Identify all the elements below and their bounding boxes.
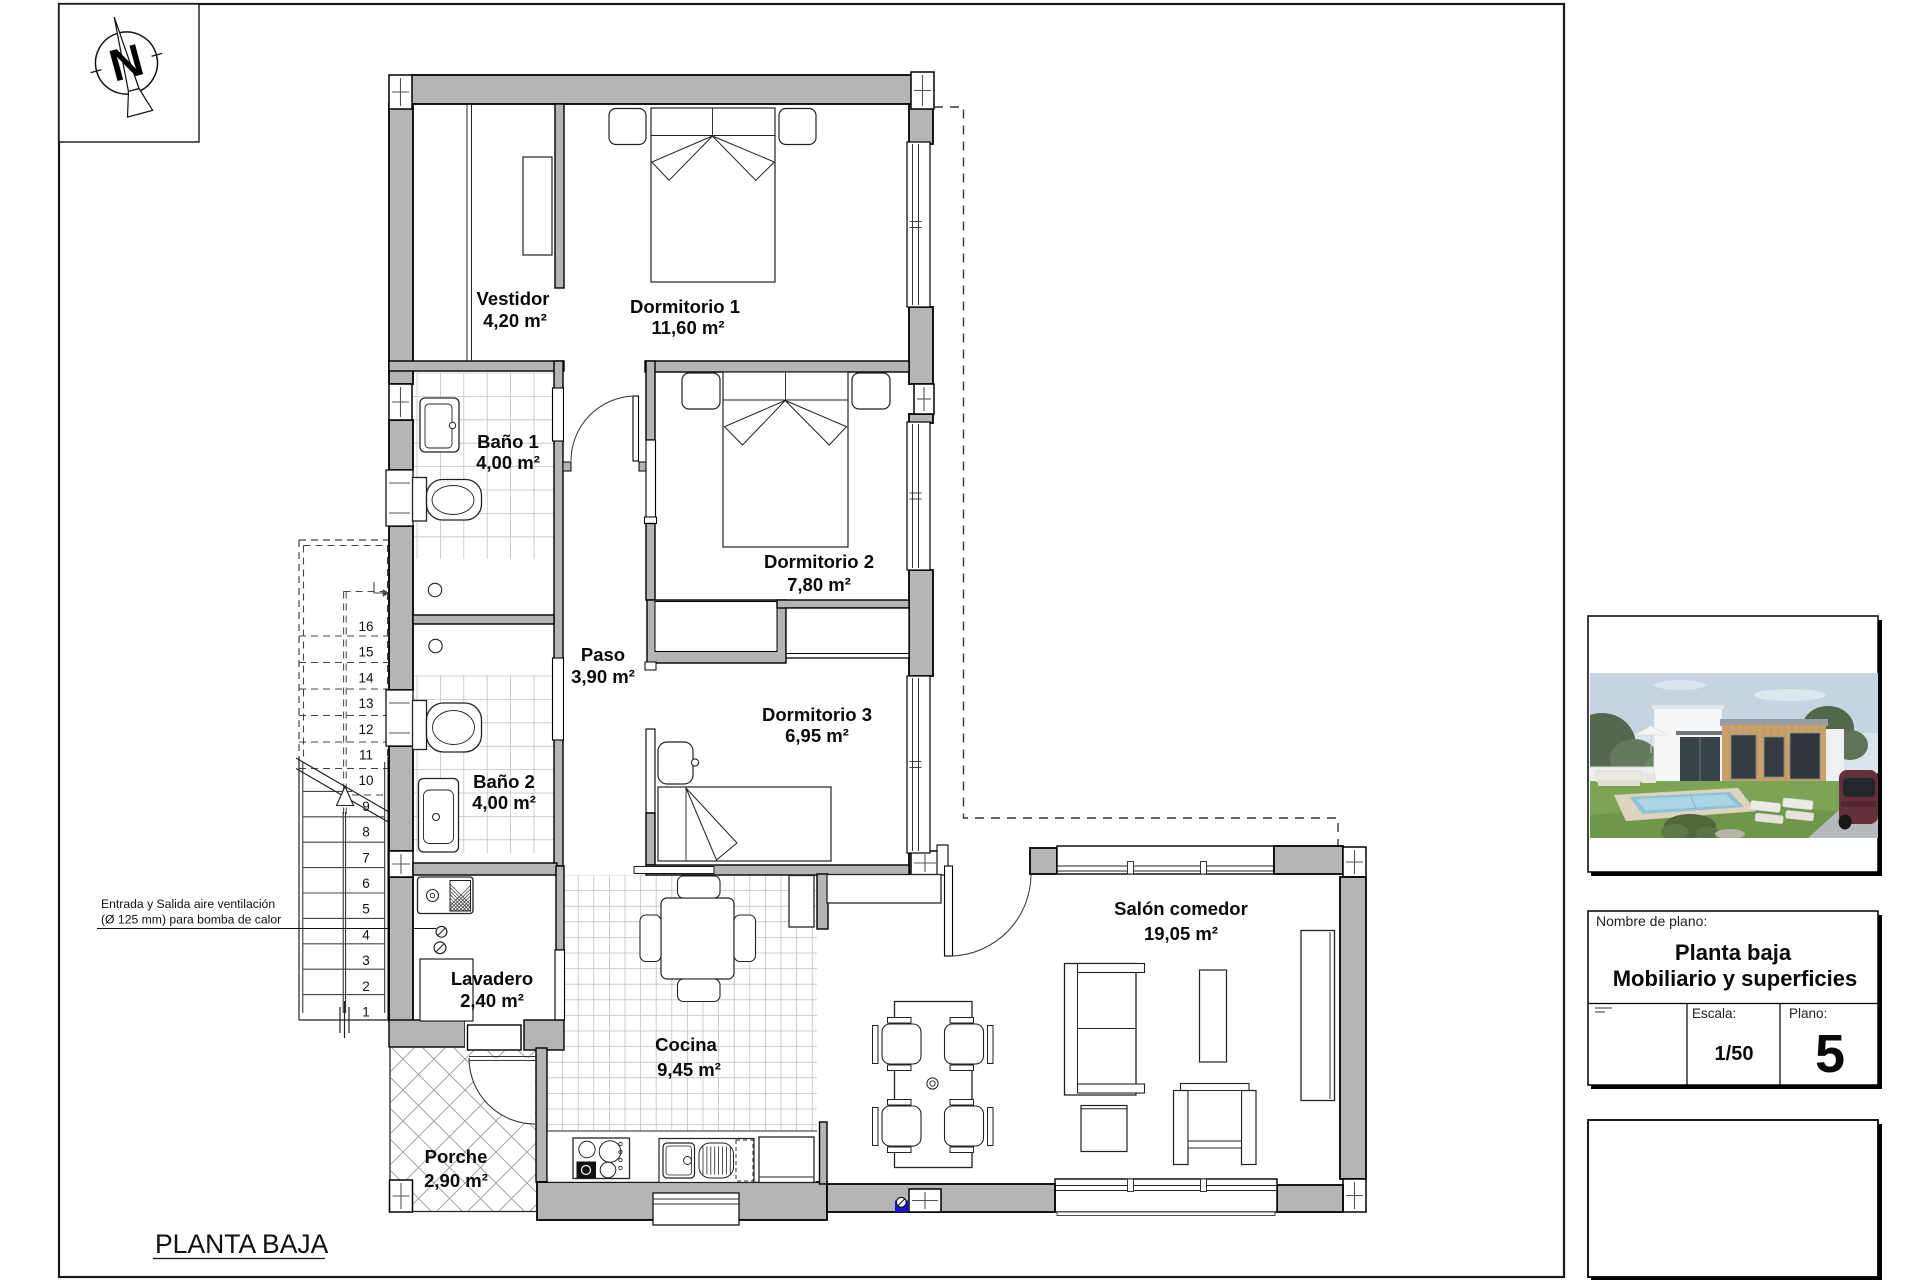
- svg-text:Planta baja: Planta baja: [1675, 940, 1792, 965]
- svg-text:3,90 m²: 3,90 m²: [571, 666, 635, 687]
- svg-text:Plano:: Plano:: [1789, 1006, 1827, 1021]
- svg-text:Dormitorio 3: Dormitorio 3: [762, 704, 872, 725]
- svg-text:7: 7: [362, 850, 370, 865]
- svg-text:12: 12: [358, 722, 373, 737]
- svg-text:5: 5: [1815, 1024, 1845, 1084]
- svg-text:Mobiliario y superficies: Mobiliario y superficies: [1613, 966, 1858, 991]
- svg-text:4: 4: [362, 927, 370, 942]
- svg-text:Cocina: Cocina: [655, 1034, 717, 1055]
- svg-text:Dormitorio 2: Dormitorio 2: [764, 551, 874, 572]
- svg-text:4,00 m²: 4,00 m²: [476, 452, 540, 473]
- svg-text:6,95 m²: 6,95 m²: [785, 725, 849, 746]
- svg-text:Escala:: Escala:: [1692, 1006, 1736, 1021]
- svg-text:2,90 m²: 2,90 m²: [424, 1170, 488, 1191]
- svg-text:10: 10: [358, 773, 373, 788]
- svg-text:Nombre de plano:: Nombre de plano:: [1596, 913, 1707, 929]
- svg-text:Lavadero: Lavadero: [451, 968, 533, 989]
- svg-text:9,45 m²: 9,45 m²: [657, 1059, 721, 1080]
- svg-text:2: 2: [362, 979, 370, 994]
- svg-text:6: 6: [362, 876, 370, 891]
- svg-text:7,80 m²: 7,80 m²: [787, 574, 851, 595]
- svg-text:2,40 m²: 2,40 m²: [460, 990, 524, 1011]
- svg-text:PLANTA BAJA: PLANTA BAJA: [155, 1229, 329, 1259]
- svg-text:5: 5: [362, 902, 370, 917]
- svg-text:3: 3: [362, 953, 370, 968]
- svg-text:Dormitorio 1: Dormitorio 1: [630, 296, 740, 317]
- svg-text:Salón comedor: Salón comedor: [1114, 898, 1248, 919]
- svg-text:9: 9: [362, 799, 370, 814]
- svg-text:4,00 m²: 4,00 m²: [472, 792, 536, 813]
- svg-text:Entrada y Salida aire ventilac: Entrada y Salida aire ventilación: [101, 897, 275, 911]
- svg-text:19,05 m²: 19,05 m²: [1144, 923, 1218, 944]
- svg-text:11,60 m²: 11,60 m²: [651, 317, 724, 338]
- svg-text:15: 15: [358, 645, 373, 660]
- svg-text:13: 13: [358, 696, 373, 711]
- svg-text:14: 14: [358, 670, 374, 685]
- svg-text:8: 8: [362, 825, 370, 840]
- svg-text:Porche: Porche: [425, 1146, 488, 1167]
- svg-text:Paso: Paso: [581, 644, 625, 665]
- svg-text:16: 16: [358, 619, 373, 634]
- svg-text:(Ø 125 mm) para bomba de calor: (Ø 125 mm) para bomba de calor: [101, 913, 281, 927]
- svg-text:1/50: 1/50: [1715, 1043, 1754, 1065]
- svg-text:11: 11: [359, 748, 373, 763]
- svg-text:4,20 m²: 4,20 m²: [483, 310, 547, 331]
- svg-text:Vestidor: Vestidor: [477, 288, 550, 309]
- svg-text:1: 1: [362, 1005, 370, 1020]
- svg-text:Baño 1: Baño 1: [477, 431, 539, 452]
- svg-text:Baño 2: Baño 2: [473, 771, 535, 792]
